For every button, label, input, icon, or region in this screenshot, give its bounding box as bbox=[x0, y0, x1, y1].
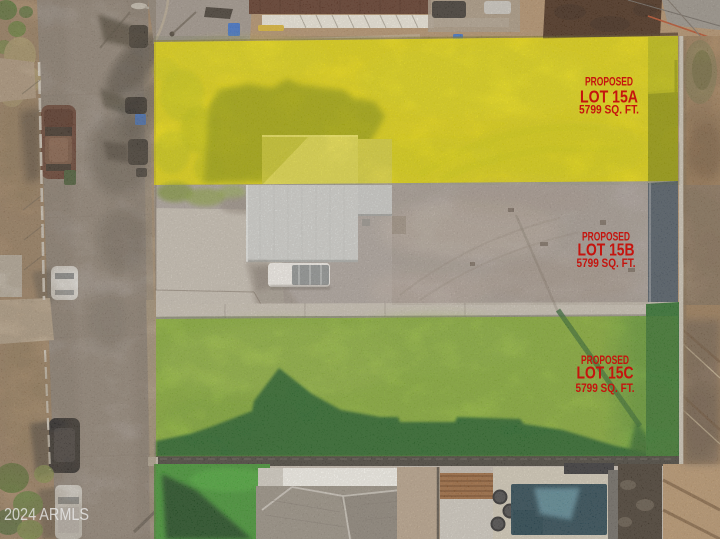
svg-text:5799 SQ. FT.: 5799 SQ. FT. bbox=[577, 256, 636, 270]
svg-text:5799 SQ. FT.: 5799 SQ. FT. bbox=[576, 381, 635, 395]
svg-text:5799 SQ. FT.: 5799 SQ. FT. bbox=[579, 103, 639, 117]
svg-text:LOT 15C: LOT 15C bbox=[577, 363, 634, 383]
svg-text:2024 ARMLS: 2024 ARMLS bbox=[4, 504, 89, 524]
